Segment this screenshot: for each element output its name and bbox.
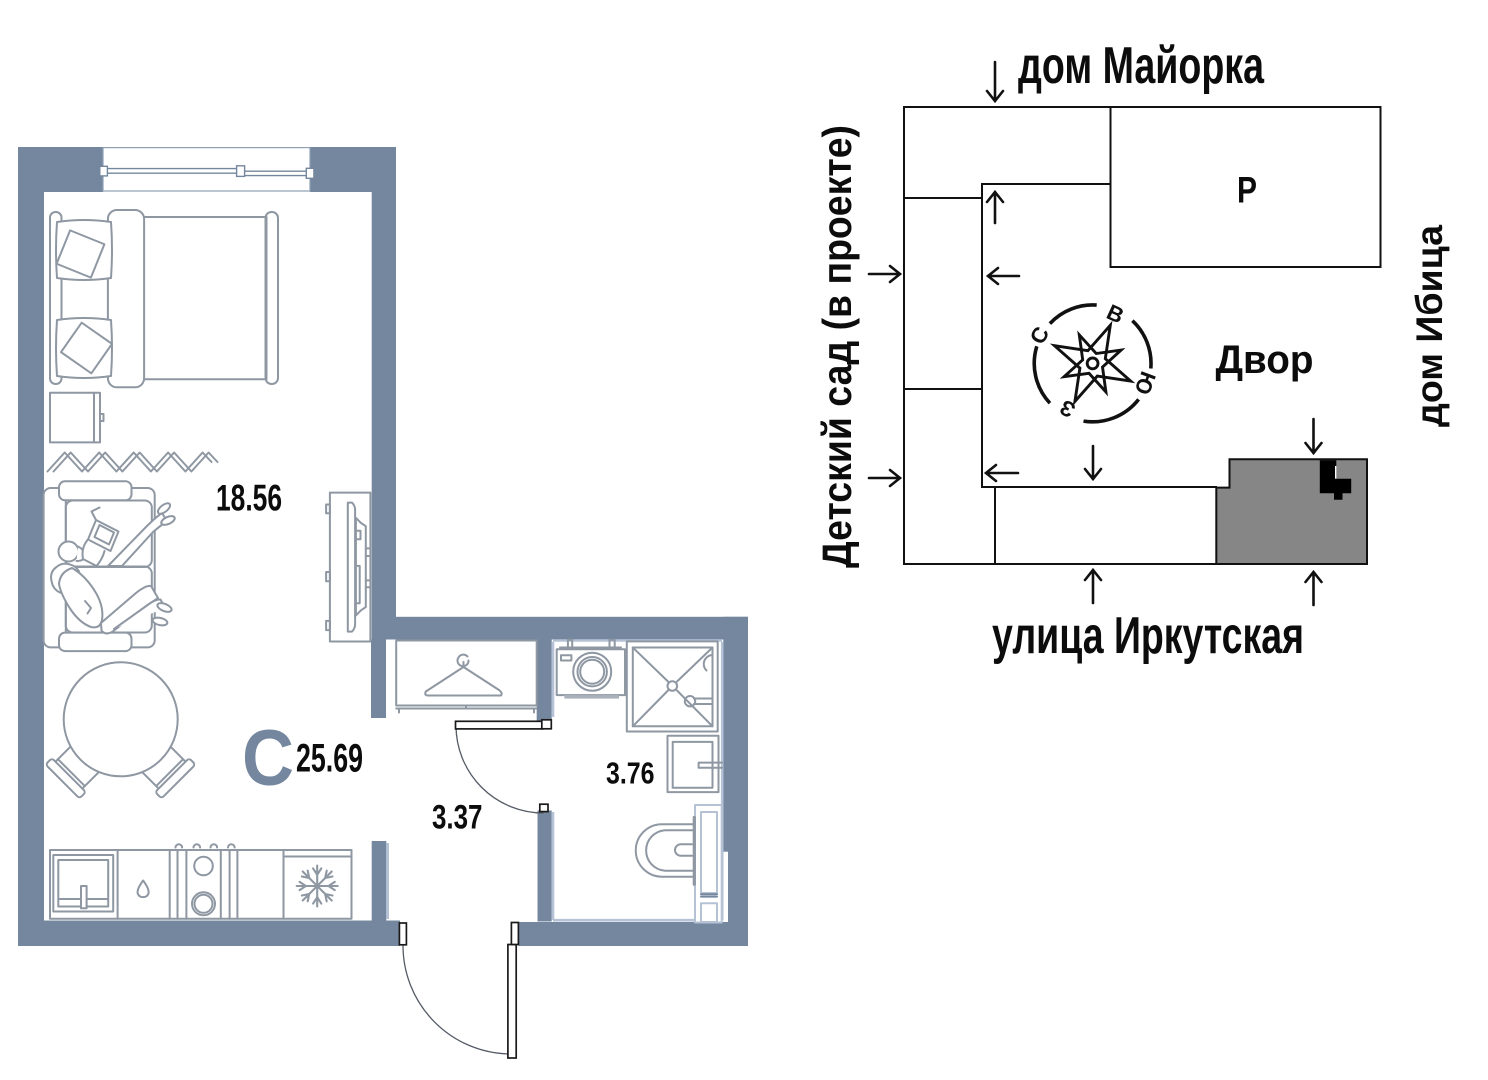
svg-text:Р: Р	[1237, 170, 1257, 211]
svg-text:3.76: 3.76	[606, 756, 655, 791]
svg-text:Детский сад (в проекте): Детский сад (в проекте)	[814, 125, 860, 568]
svg-text:18.56: 18.56	[216, 478, 282, 519]
svg-text:25.69: 25.69	[296, 737, 363, 781]
svg-text:С: С	[242, 713, 294, 802]
svg-text:дом Майорка: дом Майорка	[1018, 37, 1265, 95]
svg-text:Двор: Двор	[1216, 338, 1314, 382]
svg-text:дом Ибица: дом Ибица	[1409, 225, 1450, 427]
svg-text:улица Иркутская: улица Иркутская	[992, 607, 1304, 665]
svg-text:3.37: 3.37	[432, 799, 483, 837]
